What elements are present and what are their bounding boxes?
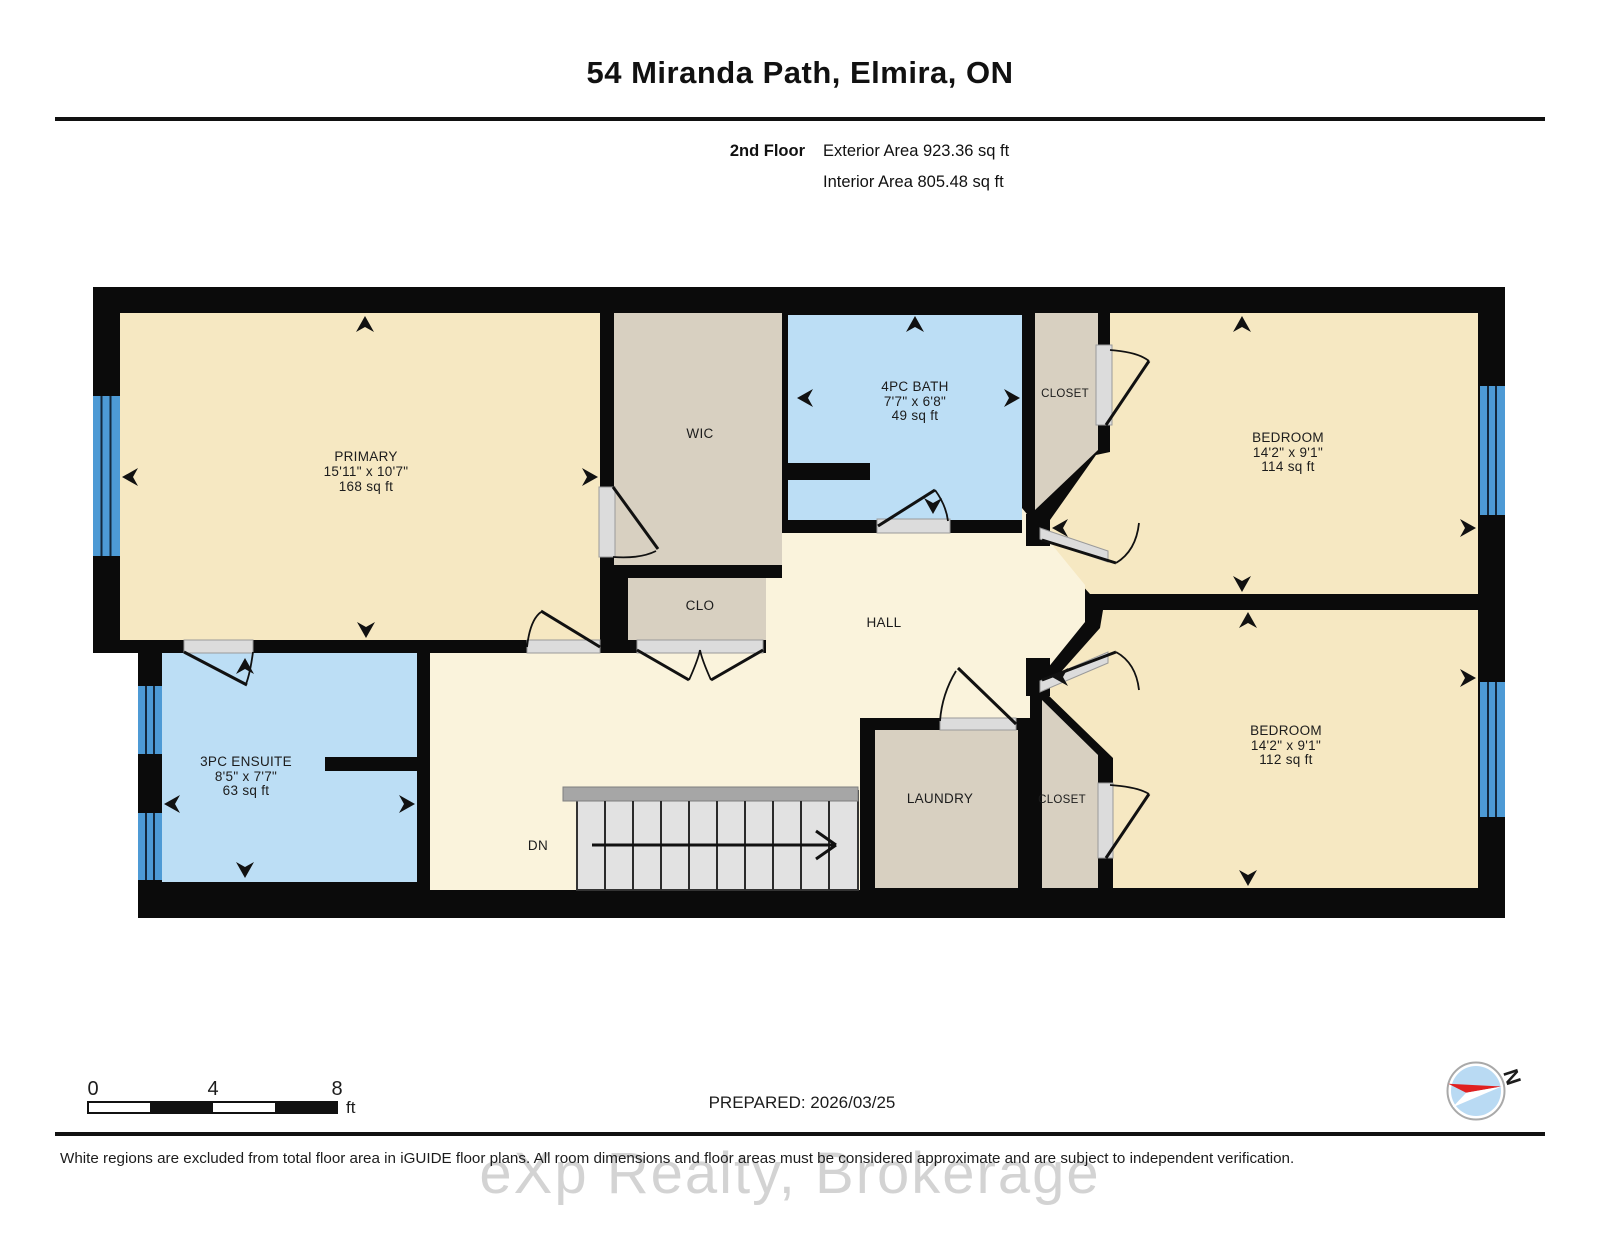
stairs-dn-label: DN [528, 838, 548, 853]
svg-text:15'11" x 10'7": 15'11" x 10'7" [324, 464, 409, 479]
svg-text:0: 0 [87, 1078, 98, 1100]
svg-text:3PC ENSUITE: 3PC ENSUITE [200, 754, 292, 769]
window-ensuite-left-2 [138, 813, 162, 880]
window-primary-left [93, 396, 120, 556]
window-bedroom-bottom-right [1480, 682, 1505, 817]
room-bedroom-bottom-label: BEDROOM 14'2" x 9'1" 112 sq ft [1250, 723, 1322, 767]
room-closet-top-label: CLOSET [1041, 388, 1089, 400]
svg-text:4: 4 [207, 1078, 218, 1100]
room-bedroom-top-label: BEDROOM 14'2" x 9'1" 114 sq ft [1252, 430, 1324, 474]
room-closet-bottom-label: CLOSET [1038, 794, 1086, 806]
room-laundry-label: LAUNDRY [907, 791, 973, 806]
svg-text:BEDROOM: BEDROOM [1252, 430, 1324, 445]
svg-text:49 sq ft: 49 sq ft [892, 408, 939, 423]
svg-text:7'7" x 6'8": 7'7" x 6'8" [884, 394, 946, 409]
svg-text:14'2" x 9'1": 14'2" x 9'1" [1251, 738, 1321, 753]
svg-text:14'2" x 9'1": 14'2" x 9'1" [1253, 445, 1323, 460]
floorplan-page: 54 Miranda Path, Elmira, ON 2nd Floor Ex… [0, 0, 1600, 1237]
room-clo-label: CLO [686, 598, 715, 613]
compass-north-label: N [1498, 1066, 1525, 1088]
footer-divider [55, 1132, 1545, 1136]
window-ensuite-left-1 [138, 686, 162, 754]
svg-text:PRIMARY: PRIMARY [334, 449, 397, 464]
stairs-top-band [563, 787, 858, 801]
svg-text:63 sq ft: 63 sq ft [223, 783, 270, 798]
compass-icon: N [1448, 1063, 1525, 1120]
svg-text:168 sq ft: 168 sq ft [339, 479, 394, 494]
svg-text:4PC BATH: 4PC BATH [881, 379, 948, 394]
disclaimer-text: White regions are excluded from total fl… [60, 1150, 1294, 1167]
svg-text:8: 8 [331, 1078, 342, 1100]
room-wic-label: WIC [686, 426, 713, 441]
scale-bar: 0 4 8 ft [87, 1078, 355, 1117]
room-laundry-floor [875, 730, 1018, 888]
svg-text:114 sq ft: 114 sq ft [1261, 459, 1314, 474]
prepared-date: PREPARED: 2026/03/25 [709, 1093, 896, 1112]
room-hall-label: HALL [867, 615, 902, 630]
svg-text:8'5" x 7'7": 8'5" x 7'7" [215, 769, 277, 784]
window-bedroom-top-right [1480, 386, 1505, 515]
floorplan-canvas: PRIMARY 15'11" x 10'7" 168 sq ft WIC 4PC… [0, 0, 1600, 1237]
stairs [563, 787, 858, 890]
svg-text:BEDROOM: BEDROOM [1250, 723, 1322, 738]
svg-text:112 sq ft: 112 sq ft [1259, 752, 1312, 767]
svg-text:ft: ft [346, 1098, 356, 1117]
